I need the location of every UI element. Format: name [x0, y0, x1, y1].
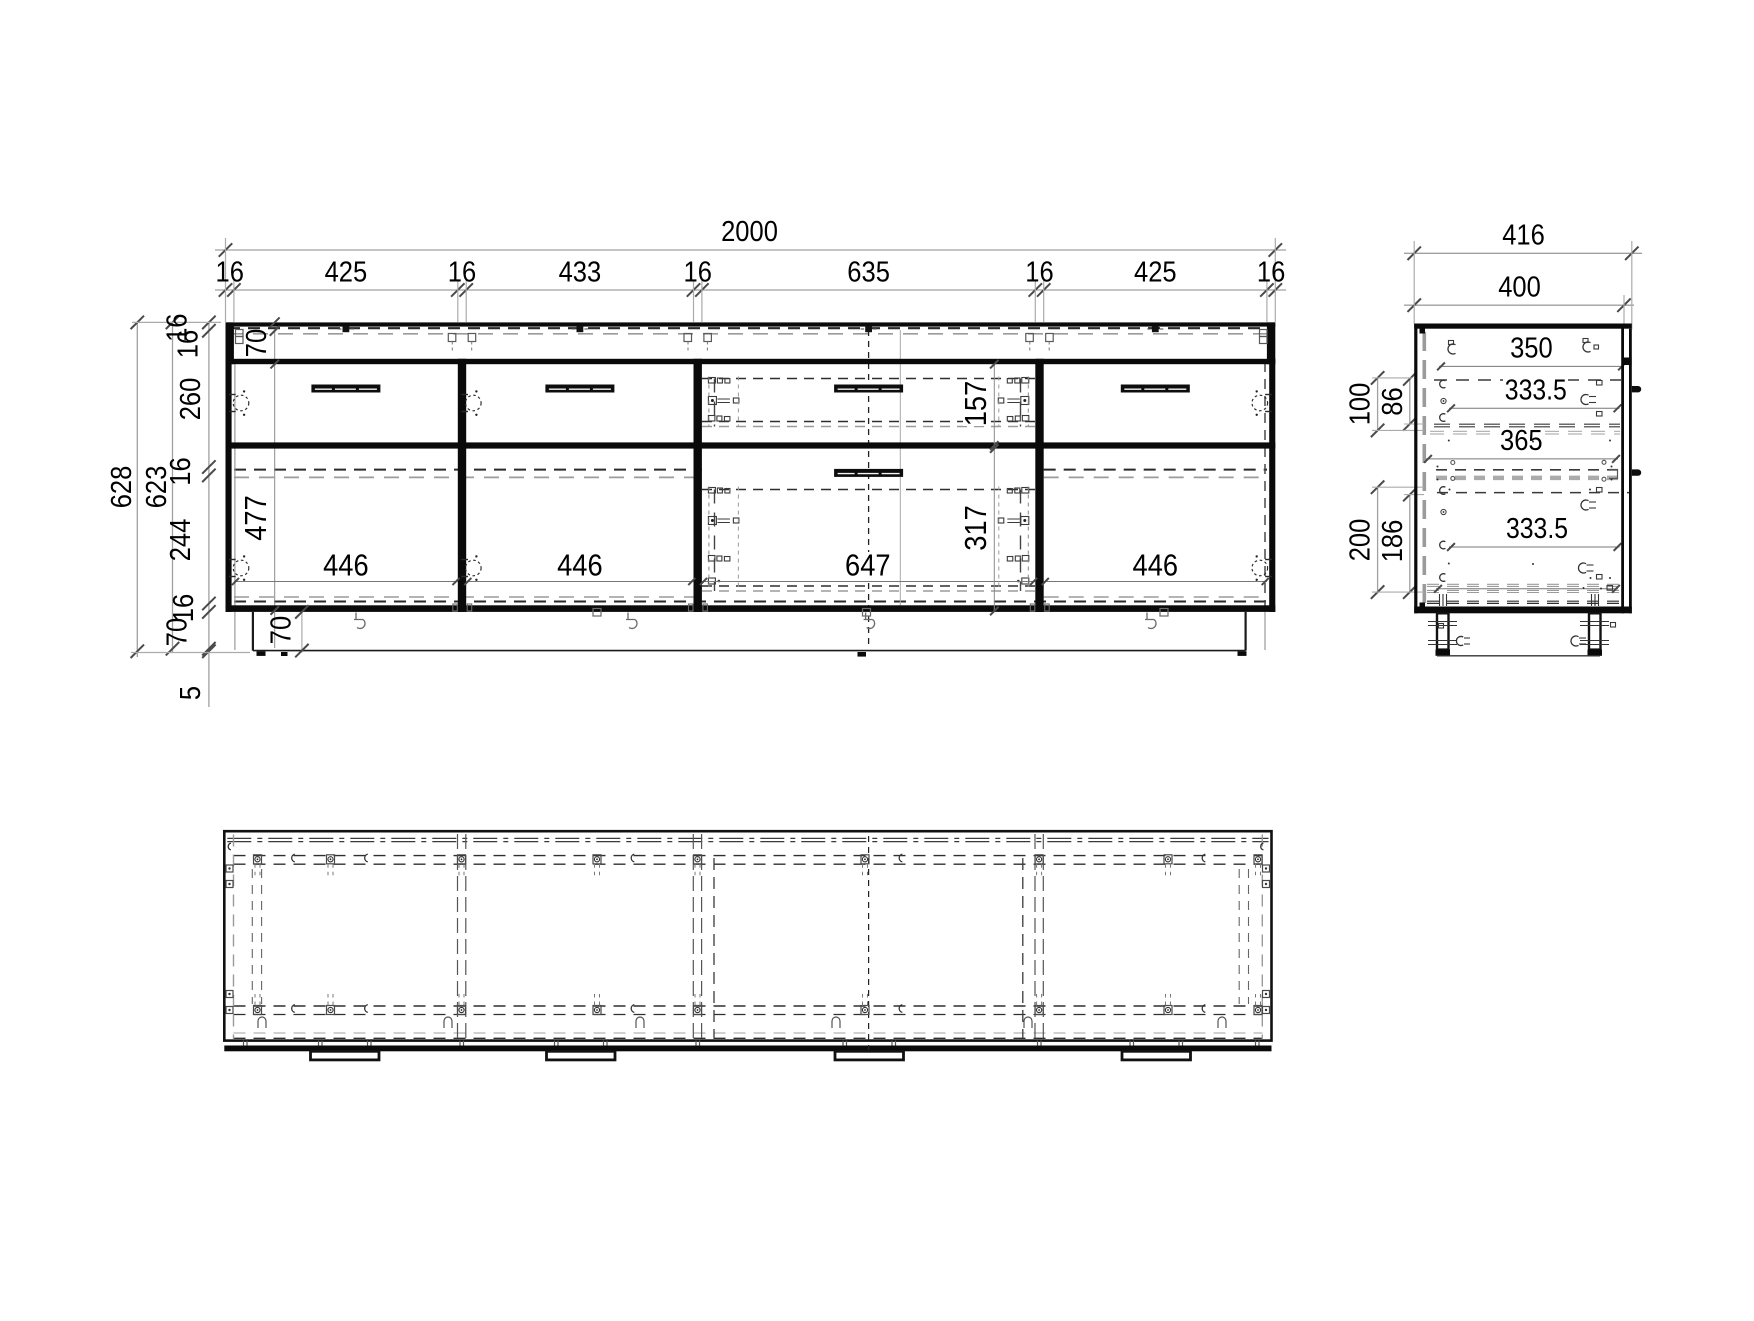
svg-text:157: 157	[958, 381, 993, 427]
svg-text:70: 70	[241, 329, 273, 357]
svg-text:425: 425	[1134, 257, 1177, 289]
svg-text:446: 446	[557, 548, 603, 583]
svg-text:2000: 2000	[721, 216, 778, 248]
svg-text:317: 317	[958, 505, 993, 551]
svg-text:100: 100	[1345, 383, 1377, 426]
svg-text:260: 260	[175, 378, 207, 421]
svg-text:433: 433	[559, 257, 602, 289]
svg-text:16: 16	[173, 330, 205, 358]
svg-text:647: 647	[845, 548, 891, 583]
svg-text:70: 70	[266, 616, 298, 644]
svg-text:446: 446	[323, 548, 369, 583]
svg-text:400: 400	[1498, 272, 1541, 304]
svg-text:16: 16	[1025, 257, 1053, 289]
svg-text:365: 365	[1500, 425, 1543, 457]
svg-text:16: 16	[684, 257, 712, 289]
svg-text:477: 477	[238, 495, 273, 541]
svg-text:635: 635	[847, 257, 890, 289]
svg-text:70: 70	[162, 618, 194, 646]
svg-text:446: 446	[1133, 548, 1179, 583]
svg-text:244: 244	[165, 519, 197, 562]
svg-text:86: 86	[1377, 387, 1409, 415]
svg-text:16: 16	[216, 257, 244, 289]
svg-text:186: 186	[1377, 520, 1409, 563]
svg-text:628: 628	[106, 466, 138, 509]
svg-text:16: 16	[165, 457, 197, 485]
svg-text:200: 200	[1345, 519, 1377, 562]
svg-text:350: 350	[1510, 333, 1553, 365]
svg-text:333.5: 333.5	[1506, 513, 1568, 545]
svg-text:16: 16	[448, 257, 476, 289]
svg-text:425: 425	[325, 257, 368, 289]
svg-text:333.5: 333.5	[1505, 375, 1567, 407]
svg-text:5: 5	[175, 686, 207, 700]
svg-text:16: 16	[1257, 257, 1285, 289]
svg-text:416: 416	[1502, 220, 1545, 252]
